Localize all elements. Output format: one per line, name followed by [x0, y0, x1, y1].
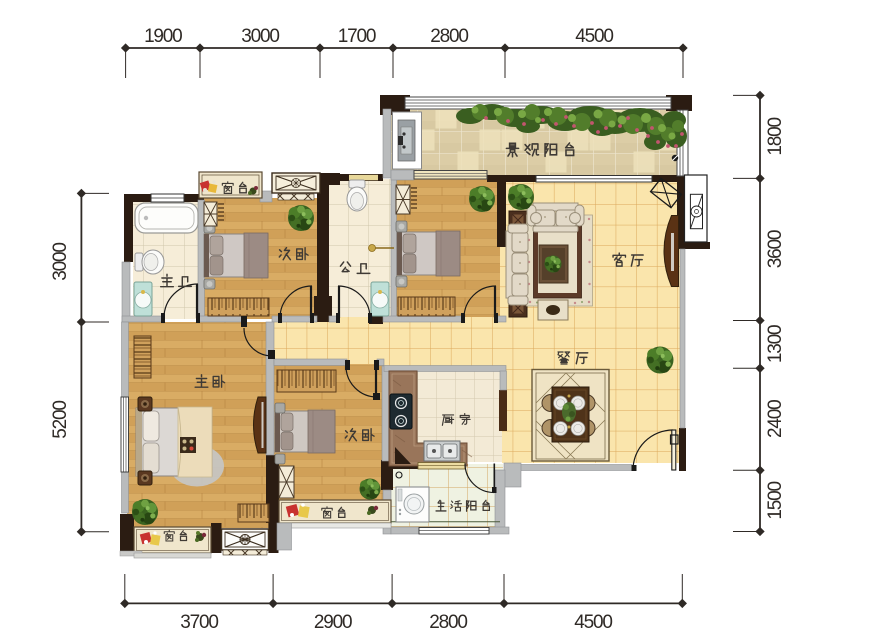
svg-text:3700: 3700: [180, 612, 218, 633]
svg-text:3000: 3000: [50, 243, 71, 281]
svg-text:2400: 2400: [765, 400, 786, 438]
svg-text:4500: 4500: [574, 612, 612, 633]
svg-text:1900: 1900: [144, 26, 182, 47]
svg-text:3000: 3000: [241, 26, 279, 47]
svg-text:1300: 1300: [765, 325, 786, 363]
svg-text:2800: 2800: [429, 612, 467, 633]
svg-text:5200: 5200: [50, 401, 71, 439]
svg-text:2800: 2800: [430, 26, 468, 47]
svg-text:1800: 1800: [765, 118, 786, 156]
svg-text:3600: 3600: [765, 230, 786, 268]
svg-text:2900: 2900: [314, 612, 352, 633]
svg-text:4500: 4500: [575, 26, 613, 47]
svg-text:1700: 1700: [338, 26, 376, 47]
svg-text:1500: 1500: [765, 482, 786, 520]
